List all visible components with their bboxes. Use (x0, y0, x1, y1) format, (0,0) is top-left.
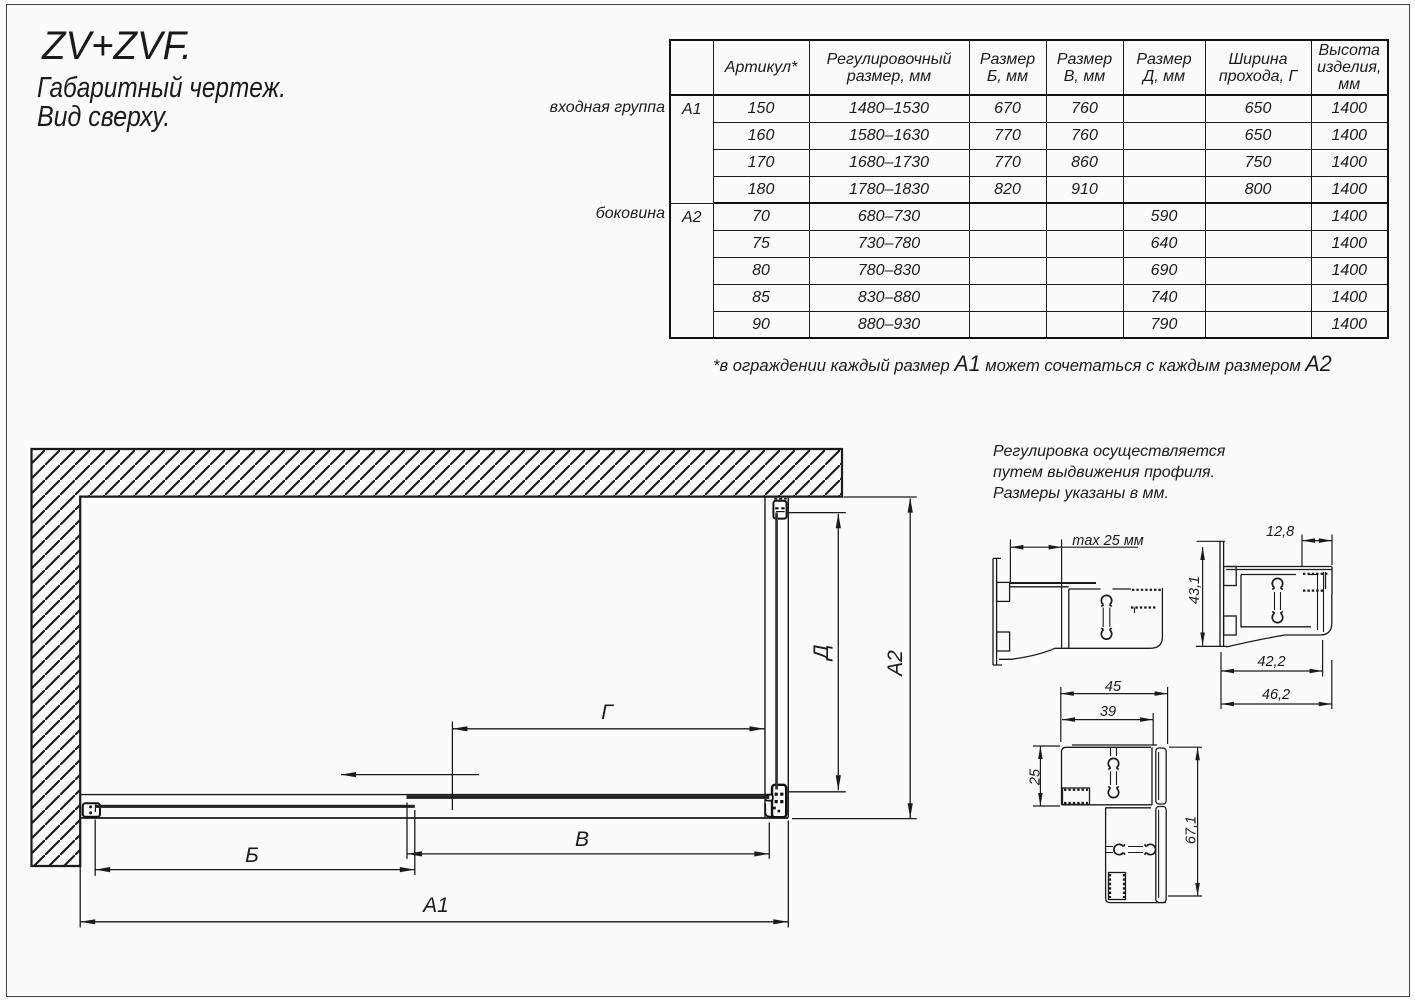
svg-text:Б: Б (245, 844, 259, 867)
svg-text:46,2: 46,2 (1262, 687, 1290, 703)
svg-text:12,8: 12,8 (1266, 524, 1294, 540)
svg-text:Д: Д (810, 644, 833, 661)
svg-text:Г: Г (601, 701, 614, 724)
svg-text:42,2: 42,2 (1257, 654, 1285, 670)
svg-text:А1: А1 (421, 894, 449, 917)
svg-text:39: 39 (1100, 704, 1116, 720)
svg-text:67,1: 67,1 (1184, 816, 1200, 844)
svg-text:А2: А2 (884, 650, 907, 678)
svg-text:43,1: 43,1 (1187, 576, 1203, 604)
svg-text:25: 25 (1028, 768, 1044, 786)
svg-text:45: 45 (1105, 679, 1122, 695)
svg-text:max 25 мм: max 25 мм (1072, 533, 1144, 549)
svg-text:В: В (575, 828, 589, 851)
